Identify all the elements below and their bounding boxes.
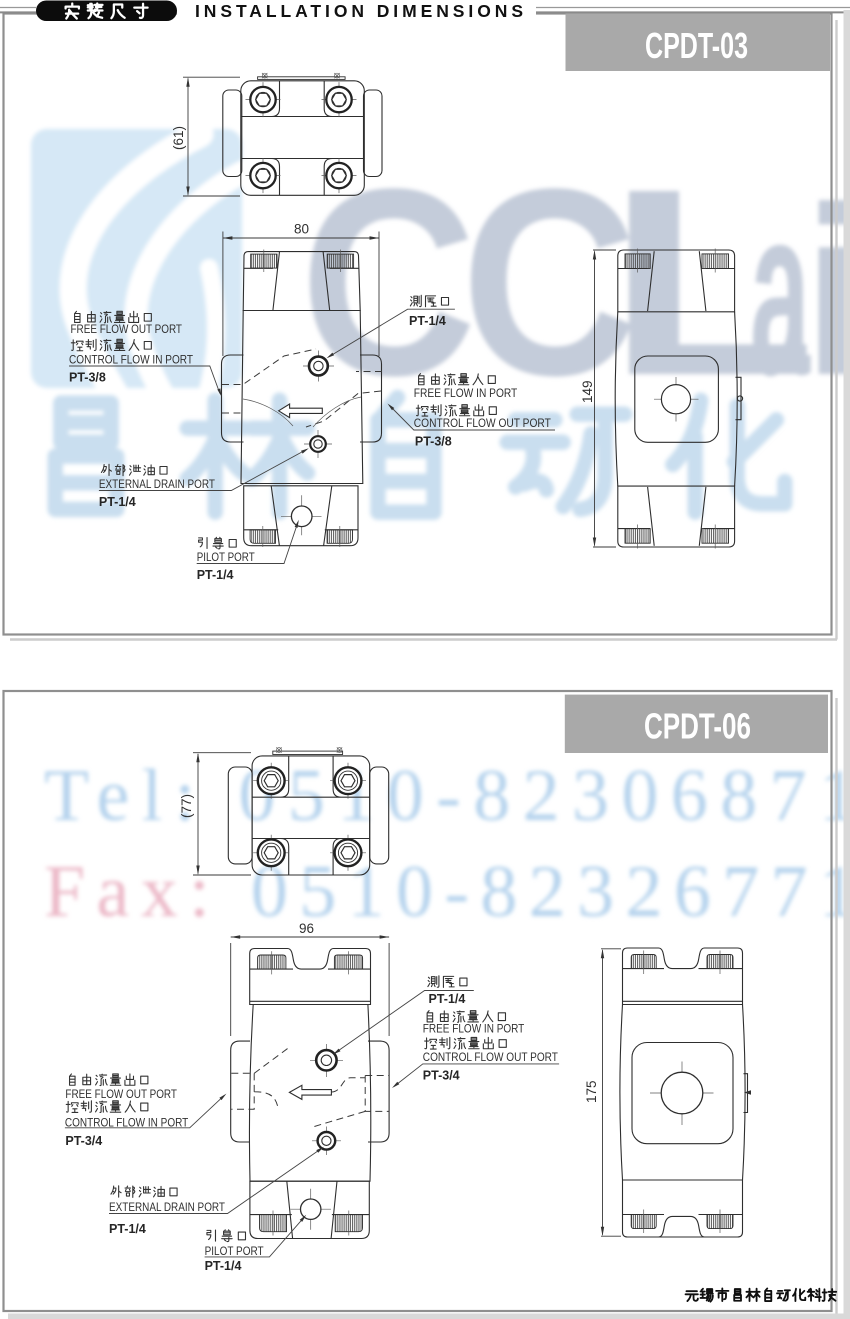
svg-text:PT-3/4: PT-3/4 [423, 1068, 460, 1082]
svg-text:PT-1/4: PT-1/4 [409, 314, 446, 328]
svg-text:PT-1/4: PT-1/4 [429, 992, 466, 1006]
svg-text:175: 175 [584, 1080, 599, 1103]
svg-text:PT-1/4: PT-1/4 [109, 1222, 146, 1236]
svg-text:80: 80 [294, 222, 309, 237]
svg-text:FREE FLOW OUT PORT: FREE FLOW OUT PORT [65, 1087, 177, 1101]
svg-text:PT-3/4: PT-3/4 [65, 1134, 102, 1148]
svg-text:PT-3/8: PT-3/8 [69, 371, 106, 385]
svg-text:FREE FLOW OUT PORT: FREE FLOW OUT PORT [71, 322, 183, 336]
svg-text:FREE FLOW IN PORT: FREE FLOW IN PORT [414, 386, 518, 400]
svg-text:CPDT-06: CPDT-06 [644, 706, 751, 747]
svg-text:PT-1/4: PT-1/4 [197, 568, 234, 582]
svg-text:PILOT PORT: PILOT PORT [197, 550, 255, 564]
svg-text:PT-3/8: PT-3/8 [415, 435, 452, 449]
svg-text:PT-1/4: PT-1/4 [99, 495, 136, 509]
svg-text:CPDT-03: CPDT-03 [645, 25, 748, 66]
svg-text:CONTROL FLOW OUT PORT: CONTROL FLOW OUT PORT [423, 1050, 558, 1064]
svg-text:(61): (61) [171, 126, 186, 150]
svg-text:FREE FLOW IN PORT: FREE FLOW IN PORT [423, 1022, 525, 1036]
svg-text:(77): (77) [179, 794, 194, 818]
svg-text:EXTERNAL DRAIN PORT: EXTERNAL DRAIN PORT [99, 477, 215, 491]
svg-text:PILOT PORT: PILOT PORT [205, 1244, 264, 1258]
svg-text:CONTROL FLOW OUT PORT: CONTROL FLOW OUT PORT [414, 416, 551, 430]
svg-text:149: 149 [580, 380, 595, 403]
svg-text:CONTROL FLOW IN PORT: CONTROL FLOW IN PORT [69, 353, 193, 367]
svg-text:96: 96 [299, 921, 314, 936]
svg-text:PT-1/4: PT-1/4 [205, 1259, 242, 1273]
svg-text:CONTROL FLOW IN PORT: CONTROL FLOW IN PORT [65, 1115, 189, 1129]
svg-text:Fax: 0510-82326771: Fax: 0510-82326771 [44, 851, 850, 933]
svg-text:EXTERNAL DRAIN PORT: EXTERNAL DRAIN PORT [109, 1200, 225, 1214]
